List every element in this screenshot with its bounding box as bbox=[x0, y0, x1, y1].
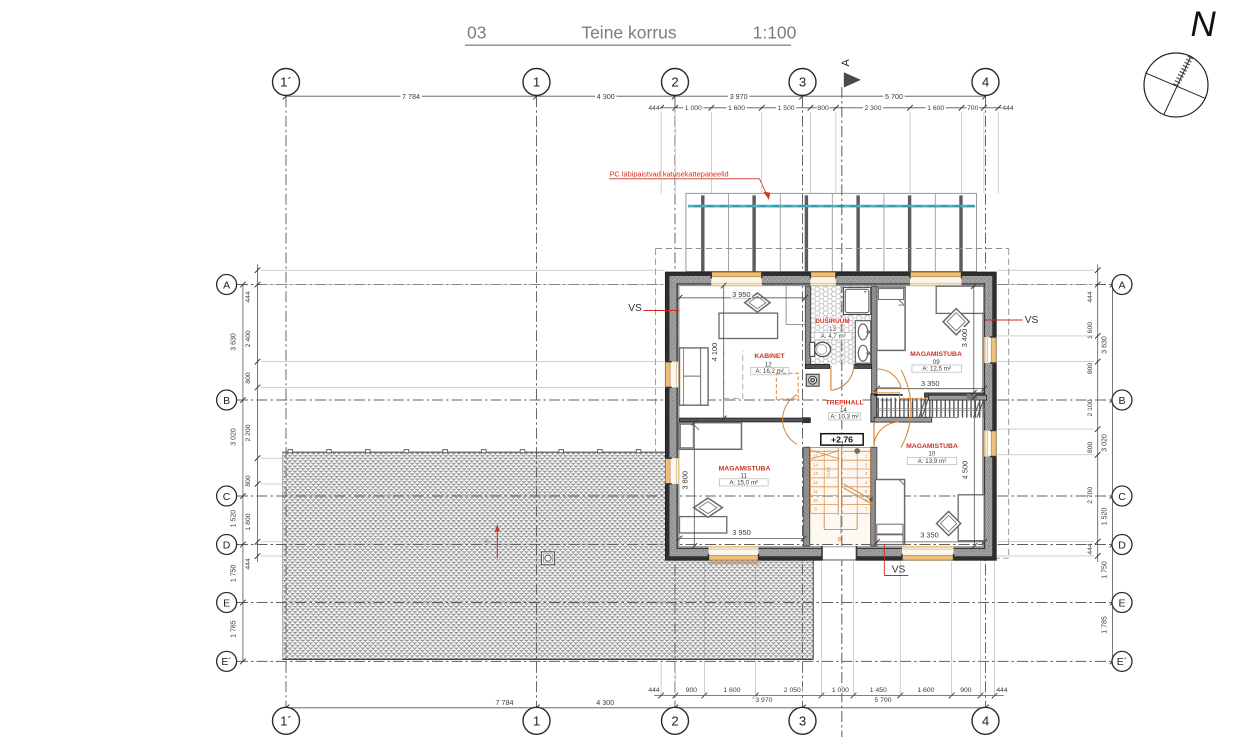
svg-text:A: A bbox=[223, 279, 230, 291]
svg-text:1: 1 bbox=[533, 713, 540, 728]
svg-text:VS: VS bbox=[628, 303, 642, 314]
svg-text:15: 15 bbox=[813, 453, 818, 458]
svg-text:3 970: 3 970 bbox=[755, 697, 772, 704]
svg-text:E´: E´ bbox=[1117, 656, 1128, 668]
svg-text:4 500: 4 500 bbox=[961, 461, 970, 480]
svg-text:MAGAMISTUBA: MAGAMISTUBA bbox=[910, 351, 962, 358]
svg-text:800: 800 bbox=[817, 105, 829, 112]
svg-text:1 600: 1 600 bbox=[917, 687, 934, 694]
svg-text:1 600: 1 600 bbox=[728, 105, 745, 112]
svg-text:1:100: 1:100 bbox=[753, 23, 797, 43]
svg-text:4 300: 4 300 bbox=[596, 698, 614, 707]
svg-text:3 950: 3 950 bbox=[732, 528, 751, 537]
svg-text:A: 10,3 m²: A: 10,3 m² bbox=[830, 413, 859, 420]
svg-text:444: 444 bbox=[1087, 543, 1094, 555]
svg-text:2 300: 2 300 bbox=[864, 105, 881, 112]
svg-text:E´: E´ bbox=[221, 656, 232, 668]
svg-text:1 520: 1 520 bbox=[1102, 508, 1109, 526]
svg-text:4 300: 4 300 bbox=[597, 92, 615, 101]
svg-text:3 950: 3 950 bbox=[732, 290, 751, 299]
svg-text:3°: 3° bbox=[485, 538, 491, 543]
svg-text:4: 4 bbox=[982, 75, 989, 90]
svg-text:2 400: 2 400 bbox=[245, 330, 252, 347]
svg-text:444: 444 bbox=[245, 291, 252, 303]
svg-text:444: 444 bbox=[1087, 291, 1094, 303]
svg-text:3: 3 bbox=[799, 75, 806, 90]
svg-text:MAGAMISTUBA: MAGAMISTUBA bbox=[906, 443, 958, 450]
svg-text:B: B bbox=[223, 395, 230, 407]
svg-text:2 050: 2 050 bbox=[784, 687, 801, 694]
svg-text:700: 700 bbox=[967, 105, 979, 112]
svg-text:3: 3 bbox=[799, 713, 806, 728]
svg-text:A: 12,5 m²: A: 12,5 m² bbox=[922, 366, 951, 373]
svg-text:3 020: 3 020 bbox=[1102, 434, 1109, 452]
svg-text:2: 2 bbox=[671, 75, 678, 90]
svg-text:4 100: 4 100 bbox=[710, 343, 719, 362]
svg-text:7 784: 7 784 bbox=[496, 698, 514, 707]
svg-text:PC läbipaistvad katusekattepan: PC läbipaistvad katusekattepaneelid bbox=[610, 170, 729, 179]
svg-text:D: D bbox=[1118, 539, 1126, 551]
svg-text:800: 800 bbox=[245, 475, 252, 487]
svg-text:444: 444 bbox=[1002, 105, 1014, 112]
svg-text:ÜLES: ÜLES bbox=[826, 466, 831, 477]
svg-text:E: E bbox=[223, 597, 230, 609]
svg-text:3 400: 3 400 bbox=[960, 329, 969, 348]
svg-text:5 700: 5 700 bbox=[874, 697, 891, 704]
svg-text:1´: 1´ bbox=[280, 713, 292, 728]
svg-text:2 700: 2 700 bbox=[1087, 487, 1094, 504]
svg-text:900: 900 bbox=[960, 687, 972, 694]
svg-text:1´: 1´ bbox=[280, 75, 292, 90]
svg-text:03: 03 bbox=[467, 23, 486, 43]
svg-text:DUŠIRUUM: DUŠIRUUM bbox=[815, 316, 849, 325]
svg-text:+2,76: +2,76 bbox=[831, 434, 853, 444]
svg-text:1 800: 1 800 bbox=[245, 513, 252, 530]
svg-text:444: 444 bbox=[245, 558, 252, 570]
svg-text:MAGAMISTUBA: MAGAMISTUBA bbox=[719, 465, 771, 472]
svg-text:12: 12 bbox=[813, 480, 818, 485]
svg-text:3 970: 3 970 bbox=[730, 92, 748, 101]
svg-text:1 750: 1 750 bbox=[1102, 561, 1109, 579]
svg-text:3 800: 3 800 bbox=[681, 471, 690, 490]
svg-text:444: 444 bbox=[996, 687, 1008, 694]
svg-text:10: 10 bbox=[928, 450, 935, 457]
svg-text:A: 15,0 m²: A: 15,0 m² bbox=[730, 479, 759, 486]
svg-text:13: 13 bbox=[813, 471, 818, 476]
svg-text:1 750: 1 750 bbox=[231, 564, 238, 582]
svg-text:1: 1 bbox=[533, 75, 540, 90]
svg-text:900: 900 bbox=[686, 687, 698, 694]
svg-text:800: 800 bbox=[1087, 363, 1094, 375]
svg-text:10: 10 bbox=[813, 498, 818, 503]
svg-text:Teine korrus: Teine korrus bbox=[581, 23, 677, 43]
svg-text:1 600: 1 600 bbox=[723, 687, 740, 694]
svg-text:N: N bbox=[1191, 5, 1217, 44]
svg-text:E: E bbox=[1118, 597, 1125, 609]
svg-text:3 630: 3 630 bbox=[231, 333, 238, 351]
svg-text:1 785: 1 785 bbox=[231, 620, 238, 638]
svg-text:4: 4 bbox=[982, 713, 989, 728]
svg-text:11: 11 bbox=[813, 489, 818, 494]
svg-text:A: A bbox=[1118, 279, 1125, 291]
svg-text:5 700: 5 700 bbox=[885, 92, 903, 101]
svg-text:C: C bbox=[223, 491, 231, 503]
svg-text:444: 444 bbox=[648, 687, 660, 694]
svg-text:2 100: 2 100 bbox=[1087, 399, 1094, 416]
svg-text:C: C bbox=[1118, 491, 1126, 503]
svg-text:A: 4,7 m²: A: 4,7 m² bbox=[821, 333, 846, 340]
svg-text:1 500: 1 500 bbox=[778, 105, 795, 112]
svg-text:A: A bbox=[840, 59, 852, 67]
svg-text:1 000: 1 000 bbox=[685, 105, 702, 112]
svg-text:D: D bbox=[223, 539, 231, 551]
svg-text:3 630: 3 630 bbox=[1102, 336, 1109, 354]
svg-text:7 784: 7 784 bbox=[402, 92, 420, 101]
svg-text:A: 13,9 m²: A: 13,9 m² bbox=[918, 458, 947, 465]
svg-text:13: 13 bbox=[829, 326, 836, 333]
svg-text:1 785: 1 785 bbox=[1102, 616, 1109, 634]
svg-text:3 350: 3 350 bbox=[920, 531, 939, 540]
svg-text:3 350: 3 350 bbox=[921, 379, 940, 388]
svg-text:1 520: 1 520 bbox=[231, 510, 238, 528]
svg-text:B: B bbox=[1118, 395, 1125, 407]
svg-text:444: 444 bbox=[648, 105, 660, 112]
svg-text:1 600: 1 600 bbox=[927, 105, 944, 112]
svg-text:14: 14 bbox=[813, 462, 818, 467]
svg-text:3 020: 3 020 bbox=[231, 428, 238, 446]
svg-text:2: 2 bbox=[671, 713, 678, 728]
svg-text:1 450: 1 450 bbox=[870, 687, 887, 694]
svg-text:800: 800 bbox=[245, 372, 252, 384]
svg-text:1 000: 1 000 bbox=[832, 687, 849, 694]
svg-text:VS: VS bbox=[1025, 315, 1039, 326]
svg-text:A: 16,2 m²: A: 16,2 m² bbox=[755, 368, 784, 375]
svg-text:TREPIHALL: TREPIHALL bbox=[826, 399, 864, 406]
svg-text:1 600: 1 600 bbox=[1087, 322, 1094, 339]
svg-text:2 200: 2 200 bbox=[245, 424, 252, 441]
svg-text:VS: VS bbox=[892, 565, 906, 576]
svg-text:KABINET: KABINET bbox=[754, 353, 785, 360]
svg-text:800: 800 bbox=[1087, 442, 1094, 454]
